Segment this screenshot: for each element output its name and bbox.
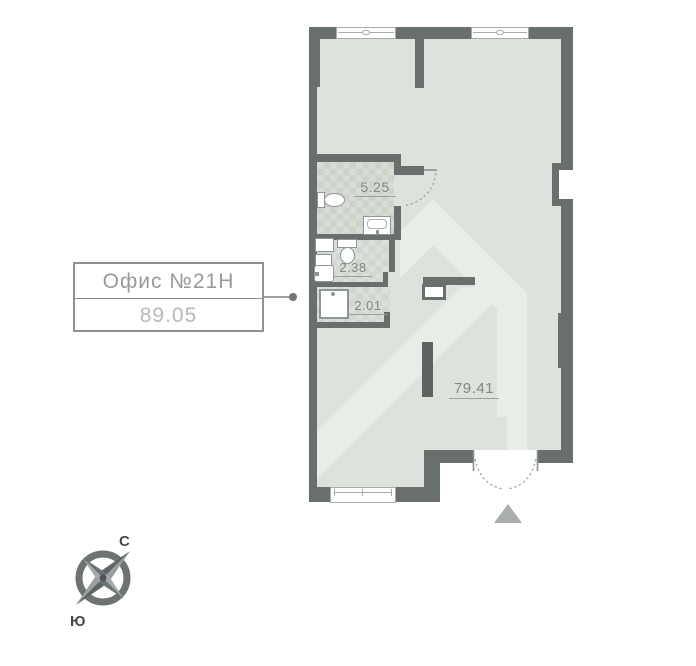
entrance-door-arc-right [507,459,536,489]
floorplan-canvas: 5.25 2.38 2.01 79.41 Офис №21Н 89.05 [0,0,696,666]
entrance-arrow-icon [494,504,522,523]
compass-rose-icon [56,531,151,626]
leader-dot-icon [289,293,297,301]
window-2-pivot-icon [497,30,504,34]
bathroom-door-arc [404,173,436,206]
window-1-pivot-icon [363,30,370,34]
compass-north-label: С [119,533,130,550]
compass-south-label: Ю [70,613,85,630]
entrance-door-arc-left [475,459,504,489]
overlay-graphics [0,0,696,666]
